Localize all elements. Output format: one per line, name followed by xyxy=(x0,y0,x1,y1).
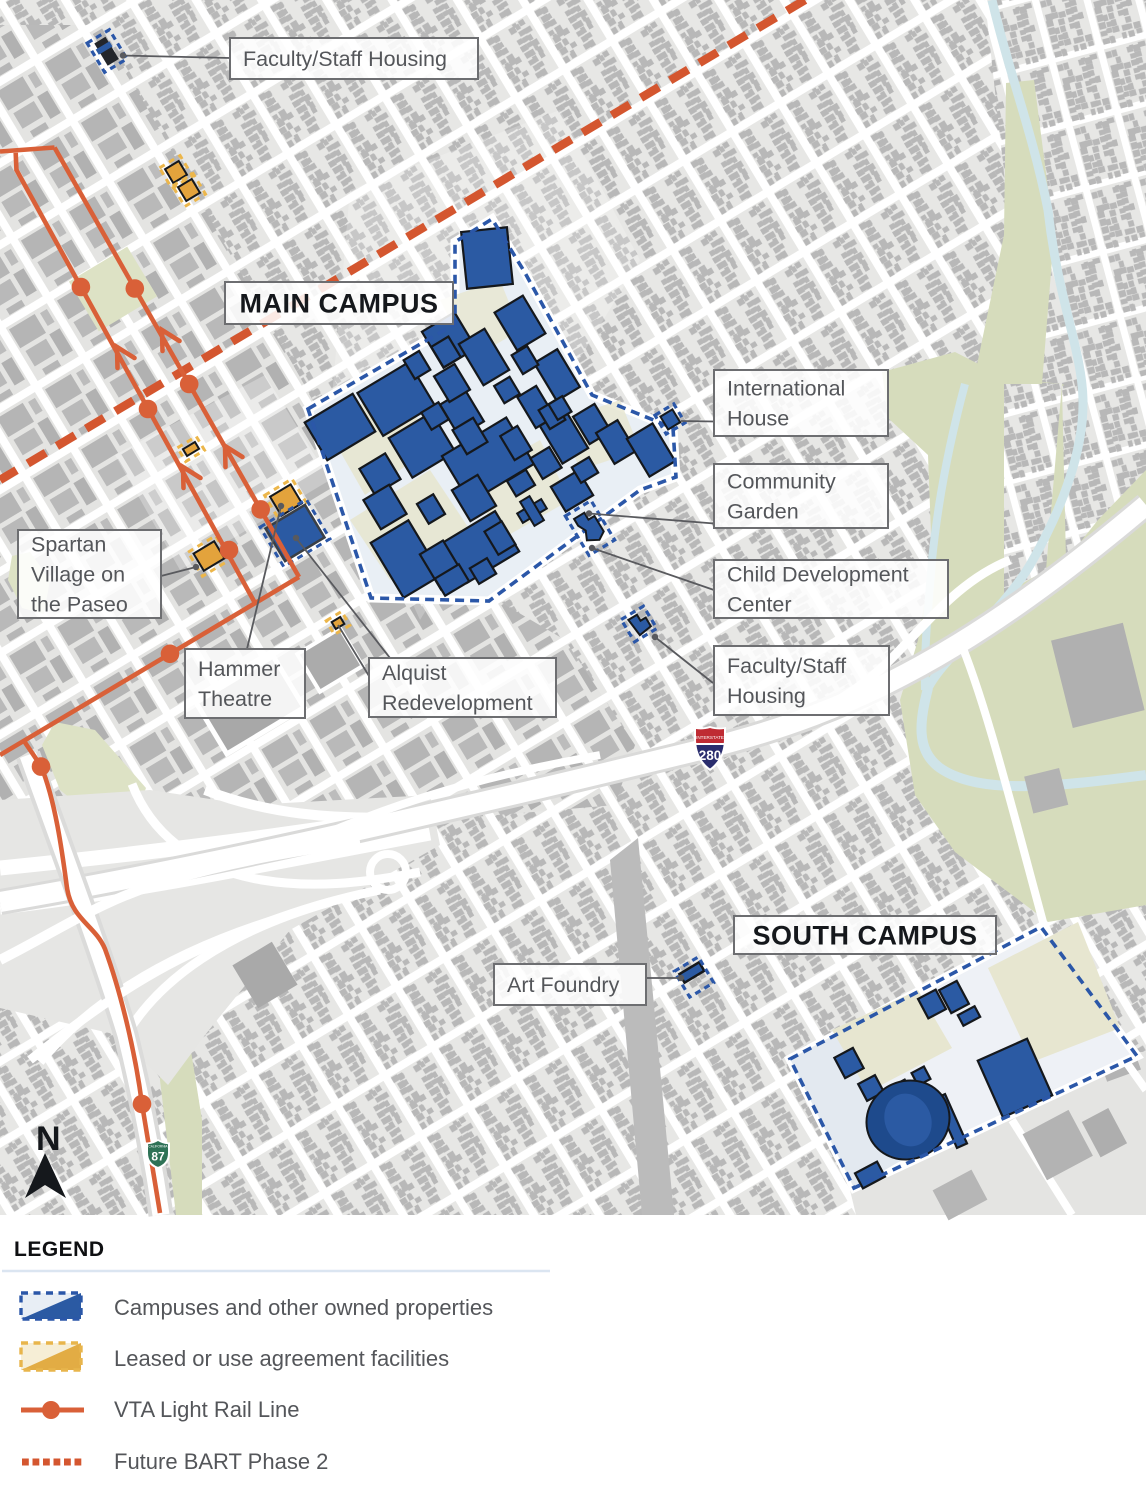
svg-text:280: 280 xyxy=(699,748,722,763)
svg-text:LEGEND: LEGEND xyxy=(14,1238,105,1261)
svg-text:CALIFORNIA: CALIFORNIA xyxy=(148,1144,168,1148)
svg-text:N: N xyxy=(36,1120,61,1158)
svg-text:Future BART Phase 2: Future BART Phase 2 xyxy=(114,1449,328,1474)
svg-text:Alquist: Alquist xyxy=(382,661,447,685)
svg-text:International: International xyxy=(727,377,845,401)
svg-text:Housing: Housing xyxy=(727,684,806,708)
svg-text:Leased or use agreement facili: Leased or use agreement facilities xyxy=(114,1346,449,1371)
svg-text:Faculty/Staff Housing: Faculty/Staff Housing xyxy=(243,47,447,71)
svg-text:House: House xyxy=(727,407,789,431)
svg-text:87: 87 xyxy=(151,1150,165,1164)
svg-text:SOUTH CAMPUS: SOUTH CAMPUS xyxy=(752,921,977,951)
svg-text:MAIN CAMPUS: MAIN CAMPUS xyxy=(240,289,439,319)
svg-text:Garden: Garden xyxy=(727,500,799,524)
svg-text:Theatre: Theatre xyxy=(198,687,272,711)
svg-text:Faculty/Staff: Faculty/Staff xyxy=(727,654,846,678)
svg-text:Child Development: Child Development xyxy=(727,563,909,587)
svg-text:Village on: Village on xyxy=(31,563,125,587)
svg-text:INTERSTATE: INTERSTATE xyxy=(696,735,724,740)
svg-text:Art Foundry: Art Foundry xyxy=(507,973,620,997)
svg-text:the Paseo: the Paseo xyxy=(31,593,128,617)
svg-text:Community: Community xyxy=(727,470,836,494)
svg-text:Center: Center xyxy=(727,593,792,617)
svg-text:Spartan: Spartan xyxy=(31,533,106,557)
svg-text:Redevelopment: Redevelopment xyxy=(382,691,533,715)
svg-text:Hammer: Hammer xyxy=(198,657,280,681)
svg-text:Campuses and other owned prope: Campuses and other owned properties xyxy=(114,1295,493,1320)
svg-text:VTA Light Rail Line: VTA Light Rail Line xyxy=(114,1397,299,1422)
